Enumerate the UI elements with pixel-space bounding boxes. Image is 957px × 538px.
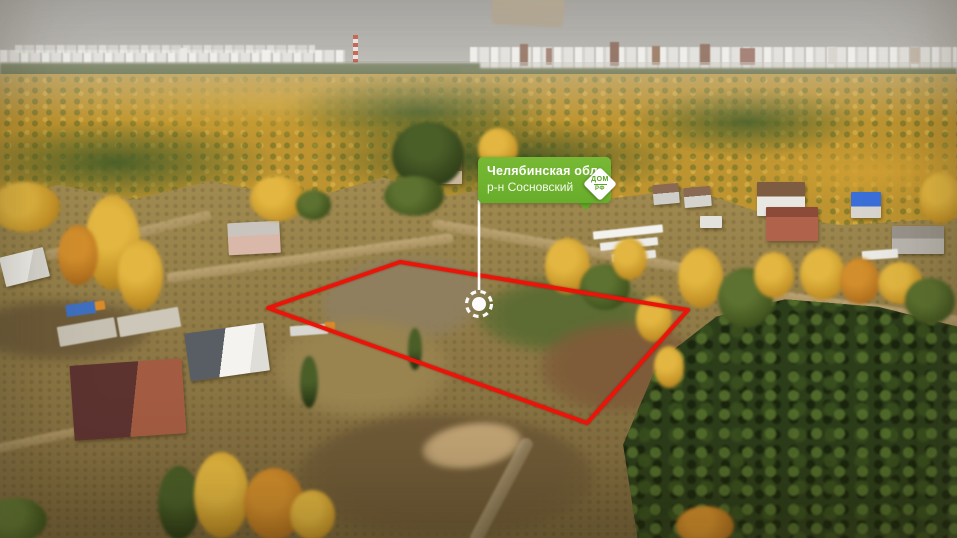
aerial-photo: Челябинская обл. р-н Сосновский ДОМ РФ	[0, 0, 957, 538]
region-name: Челябинская обл.	[487, 163, 602, 179]
logo-divider	[594, 184, 607, 185]
plot-annotation-layer	[0, 0, 957, 538]
dom-rf-logo-text: ДОМ РФ	[588, 172, 612, 196]
location-marker-dot	[472, 297, 486, 311]
